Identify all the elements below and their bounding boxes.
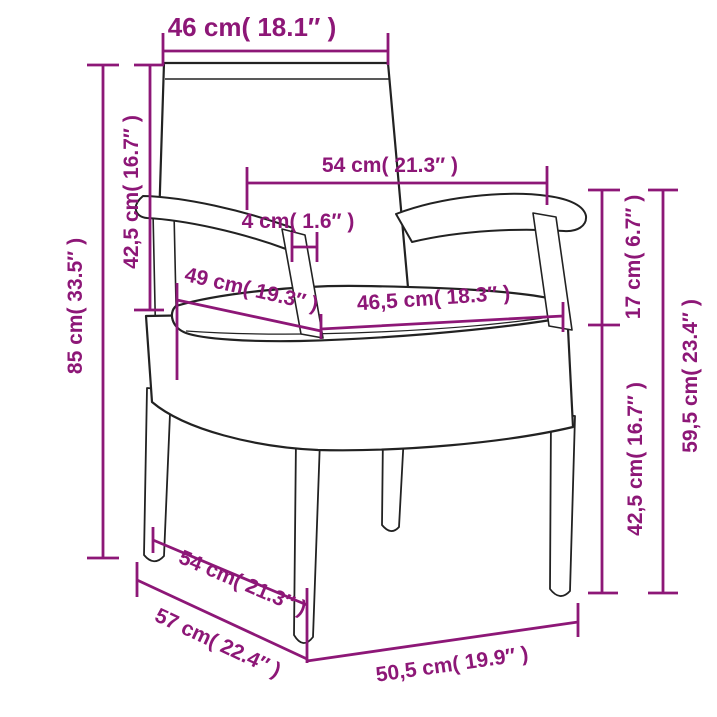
label-back-width: 46 cm( 18.1″ ) [168, 12, 337, 42]
chair-leg-back-left [144, 388, 171, 561]
dim-line-seat-height [588, 325, 618, 593]
label-armrest-span: 54 cm( 21.3″ ) [322, 154, 458, 177]
label-seat-height: 42,5 cm( 16.7″ ) [624, 382, 647, 536]
dim-line-armrest-height [648, 190, 678, 593]
label-total-height: 85 cm( 33.5″ ) [64, 238, 87, 374]
dim-line-base-width [307, 588, 578, 663]
label-armrest-thickness: 4 cm( 1.6″ ) [242, 210, 355, 233]
label-armrest-to-seat: 17 cm( 6.7″ ) [622, 195, 645, 319]
label-armrest-height: 59,5 cm( 23.4″ ) [679, 299, 702, 453]
dim-line-armrest-to-seat [588, 190, 620, 325]
chair-leg-front-right [550, 414, 575, 596]
label-back-height: 42,5 cm( 16.7″ ) [120, 115, 143, 269]
dimension-diagram: 46 cm( 18.1″ ) 42,5 cm( 16.7″ ) 85 cm( 3… [0, 0, 717, 717]
diagram-canvas: 46 cm( 18.1″ ) 42,5 cm( 16.7″ ) 85 cm( 3… [0, 0, 717, 717]
dim-line-total-height [87, 65, 119, 558]
label-base-depth-lower: 57 cm( 22.4″ ) [151, 604, 284, 682]
label-base-depth-upper: 54 cm( 21.3″ ) [175, 546, 309, 620]
